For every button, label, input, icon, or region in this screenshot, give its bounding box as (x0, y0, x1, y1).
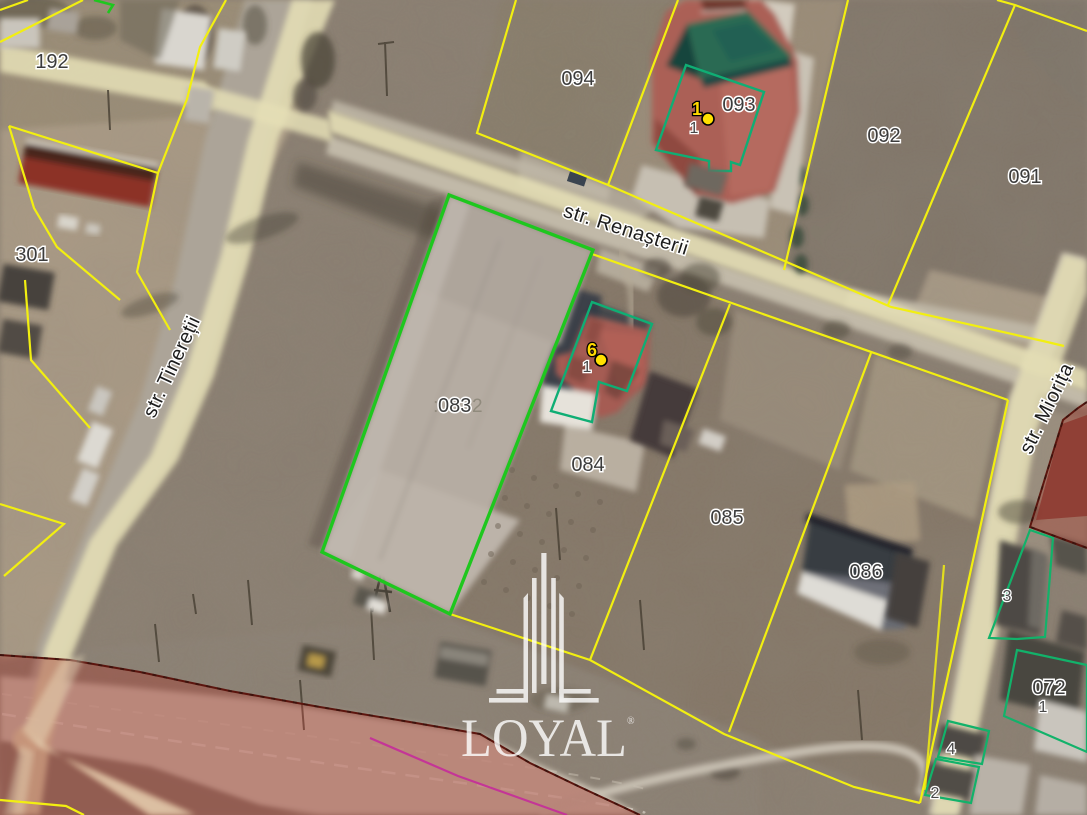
svg-text:093: 093 (722, 94, 755, 116)
svg-text:301: 301 (15, 244, 48, 266)
svg-text:2: 2 (931, 785, 940, 802)
svg-text:6: 6 (587, 340, 597, 360)
svg-text:091: 091 (1008, 166, 1041, 188)
svg-text:086: 086 (849, 561, 882, 583)
svg-text:LOYAL: LOYAL (461, 708, 627, 768)
svg-text:2: 2 (472, 396, 483, 417)
svg-text:3: 3 (1003, 588, 1012, 605)
svg-text:094: 094 (561, 68, 594, 90)
svg-text:1: 1 (692, 99, 702, 119)
svg-text:084: 084 (571, 454, 604, 476)
svg-text:®: ® (627, 716, 635, 727)
svg-text:192: 192 (35, 51, 68, 73)
svg-text:1: 1 (583, 359, 592, 376)
svg-text:072: 072 (1032, 677, 1065, 699)
svg-text:085: 085 (710, 507, 743, 529)
svg-text:1: 1 (1039, 699, 1048, 716)
svg-text:4: 4 (947, 741, 956, 758)
svg-text:092: 092 (867, 125, 900, 147)
svg-text:1: 1 (690, 120, 699, 137)
svg-text:083: 083 (438, 395, 471, 417)
